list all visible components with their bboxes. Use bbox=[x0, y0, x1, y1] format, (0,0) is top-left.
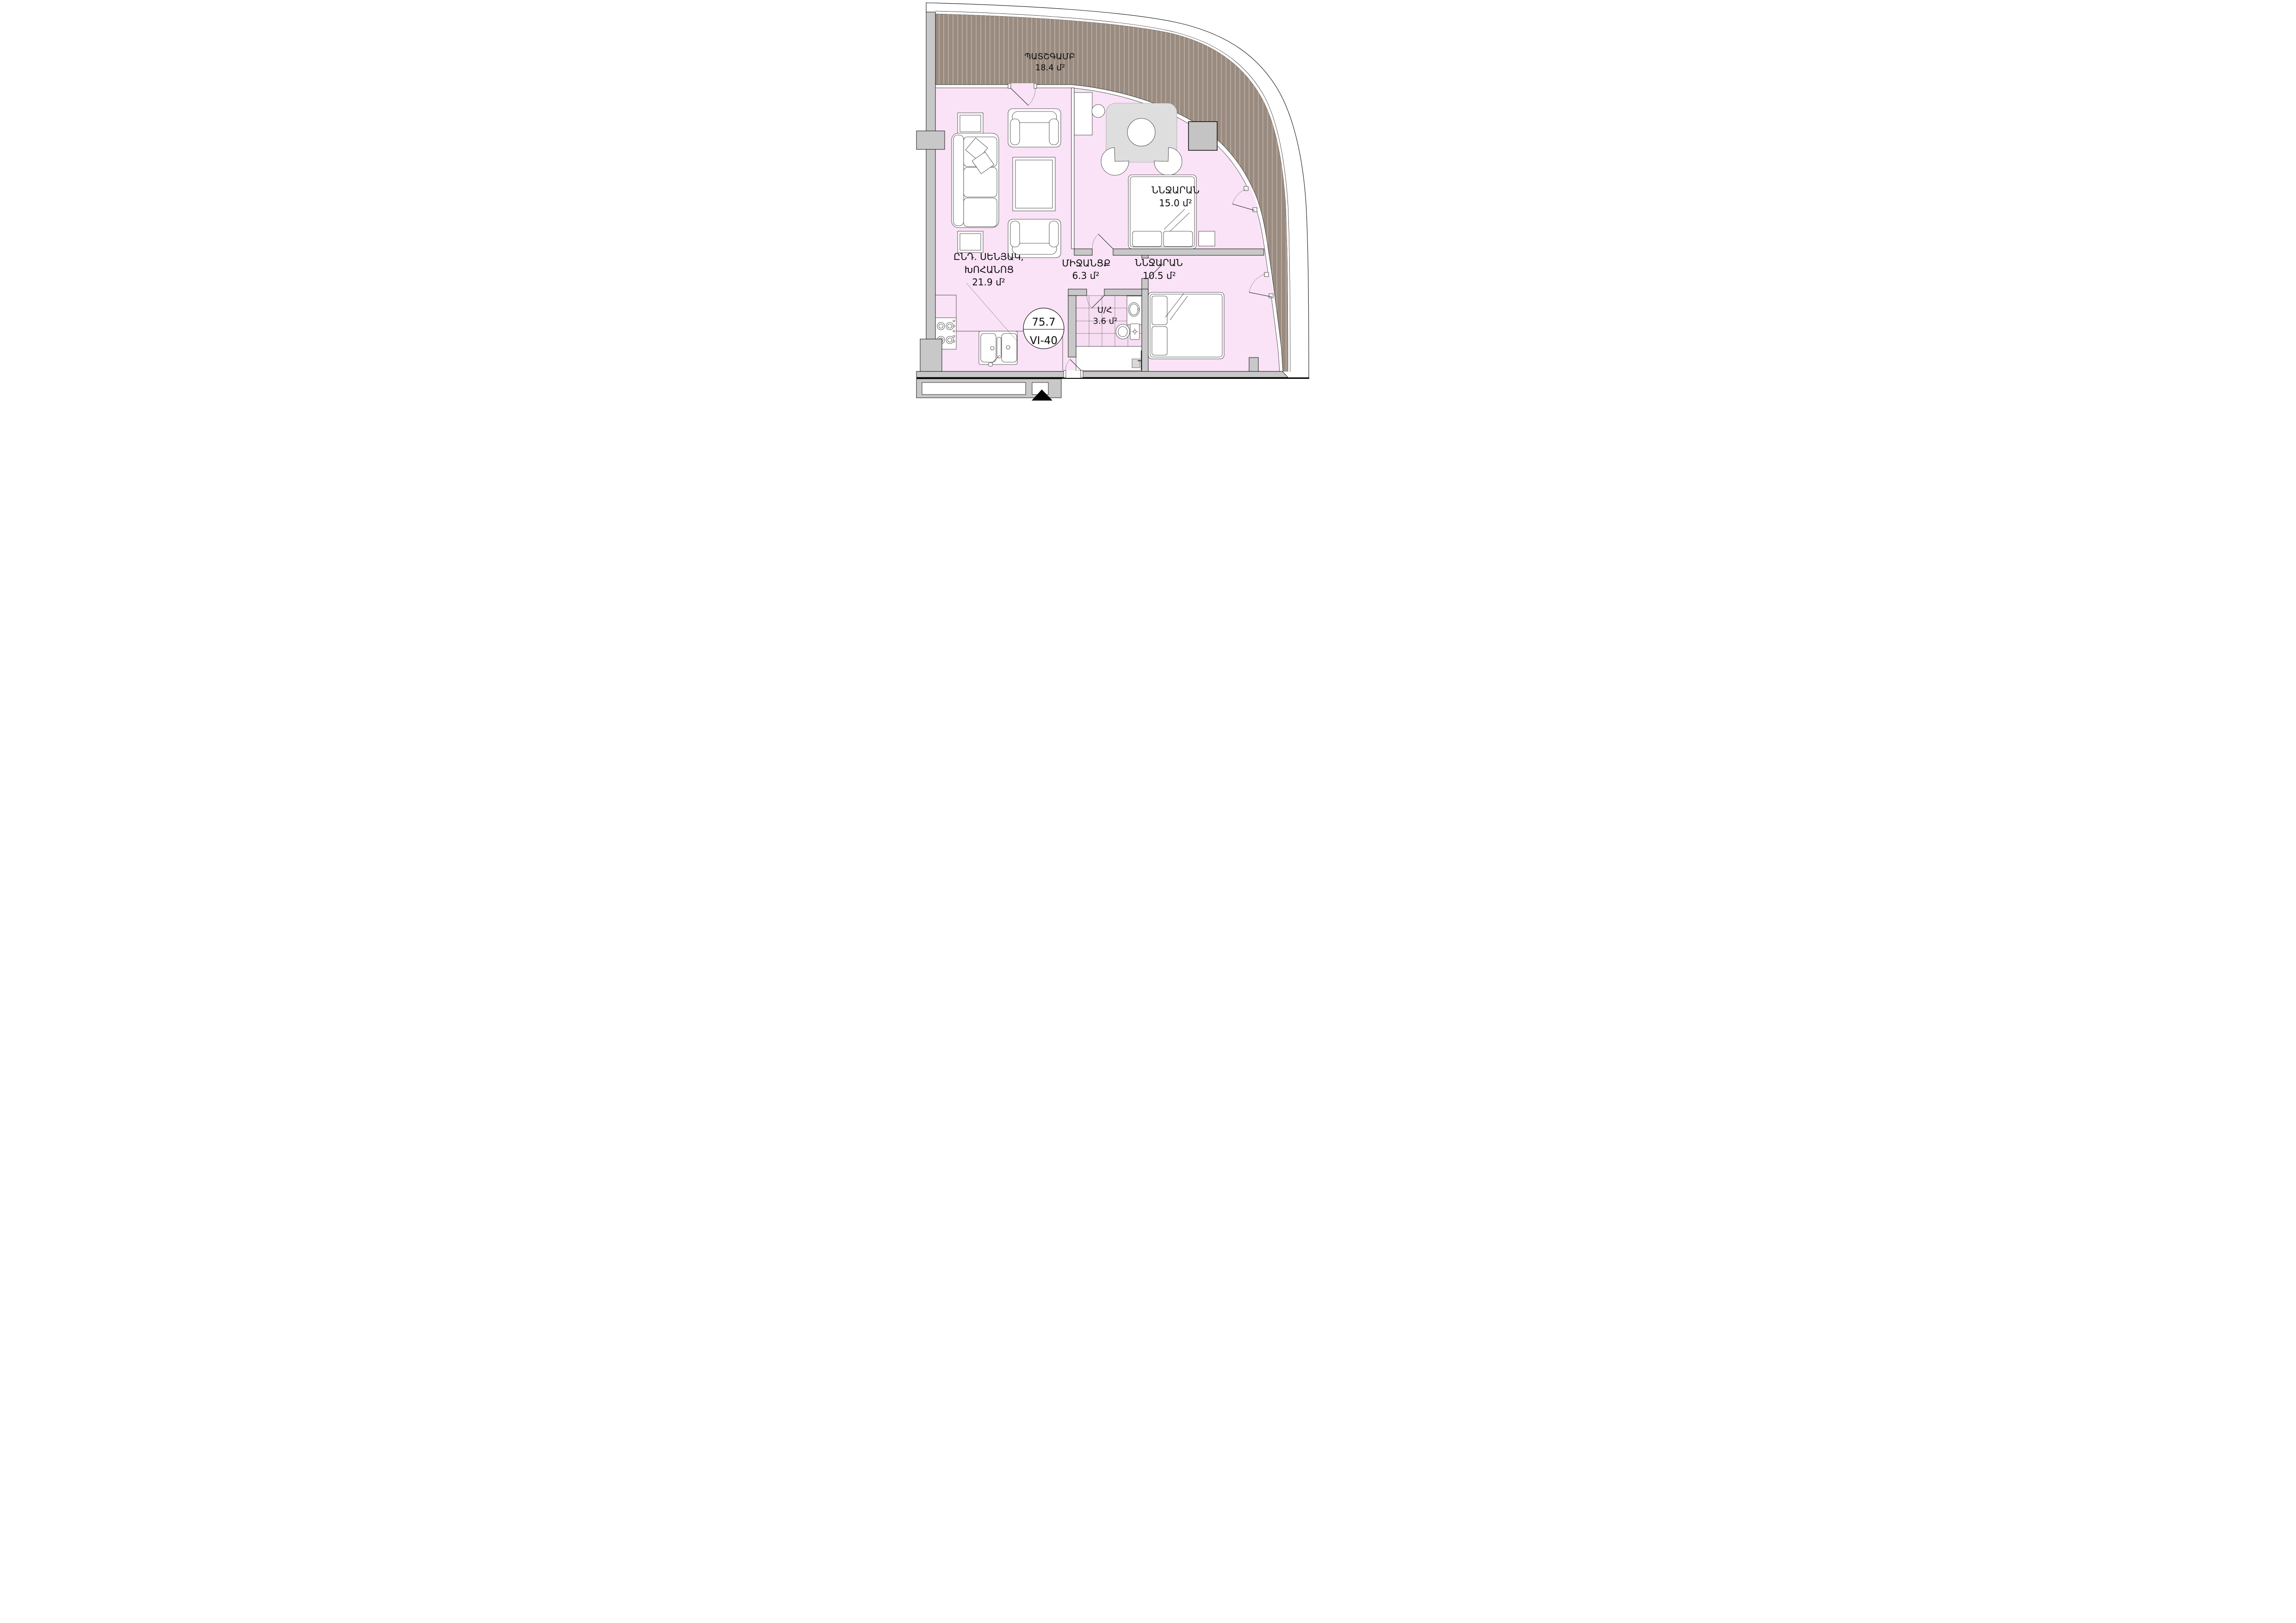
wardrobe bbox=[1074, 93, 1092, 135]
bottom-wall bbox=[916, 371, 1288, 377]
pillow bbox=[1152, 296, 1167, 325]
bathroom-top-wall bbox=[1068, 289, 1087, 296]
corridor-name: ՄԻՋԱՆՑՔ bbox=[1062, 258, 1111, 269]
nightstand bbox=[1199, 231, 1215, 246]
window bbox=[922, 383, 1026, 395]
bathroom-sink bbox=[1127, 296, 1142, 325]
pillow bbox=[1133, 231, 1162, 247]
living-area: 21.9 մ² bbox=[972, 277, 1005, 288]
dining-table bbox=[1127, 118, 1155, 146]
bedroom-divider-wall bbox=[1113, 249, 1264, 255]
bedroom1-partition-wall bbox=[1071, 88, 1074, 249]
left-wall bbox=[926, 12, 935, 371]
bathroom-name: Ս/Հ bbox=[1097, 305, 1112, 315]
floor-plan-drawing: ՊԱՏՇԳԱՄԲ 18.4 մ² ԸՆԴ. ՍԵՆՅԱԿ, ԽՈՀԱՆՈՑ 21… bbox=[861, 0, 1435, 406]
armchair bbox=[1008, 109, 1061, 147]
living-name-line1: ԸՆԴ. ՍԵՆՅԱԿ, bbox=[953, 251, 1024, 262]
side-table bbox=[958, 231, 983, 253]
bathroom-right-wall bbox=[1142, 289, 1148, 371]
bedroom2-area: 10.5 մ² bbox=[1143, 270, 1176, 281]
bottom-wall-base bbox=[916, 377, 1309, 379]
bedroom2-wall-pier bbox=[1249, 358, 1258, 371]
badge-area-value: 75.7 bbox=[1032, 316, 1055, 328]
unit-info-badge: 75.7 VI-40 bbox=[1023, 308, 1064, 349]
bedroom-divider-wall bbox=[1074, 249, 1092, 255]
balcony-name: ՊԱՏՇԳԱՄԲ bbox=[1024, 52, 1075, 62]
bedroom2-name: ՆՆՋԱՐԱՆ bbox=[1135, 257, 1183, 268]
bedroom2-furniture bbox=[1148, 292, 1224, 359]
utility-niche bbox=[1076, 346, 1145, 370]
floor-lamp bbox=[1092, 105, 1105, 117]
bedroom1-name: ՆՆՋԱՐԱՆ bbox=[1151, 185, 1200, 196]
living-bathroom-wall bbox=[1068, 296, 1076, 357]
toilet bbox=[1116, 324, 1139, 339]
badge-unit-number: VI-40 bbox=[1030, 335, 1058, 347]
bathroom-area: 3.6 մ² bbox=[1093, 316, 1118, 326]
pillow bbox=[1163, 231, 1193, 247]
floor-plan-page: ՊԱՏՇԳԱՄԲ 18.4 մ² ԸՆԴ. ՍԵՆՅԱԿ, ԽՈՀԱՆՈՑ 21… bbox=[861, 0, 1435, 406]
pillow bbox=[1152, 327, 1167, 355]
living-name-line2: ԽՈՀԱՆՈՑ bbox=[965, 264, 1014, 275]
kitchen-wall-pier bbox=[920, 339, 942, 371]
double-bed bbox=[1148, 292, 1224, 359]
balcony-area: 18.4 մ² bbox=[1035, 63, 1065, 73]
sofa bbox=[952, 133, 999, 228]
left-wall-column bbox=[916, 131, 945, 149]
washing-machine bbox=[1132, 359, 1140, 368]
kitchen-sink bbox=[979, 331, 1017, 366]
corridor-area: 6.3 մ² bbox=[1072, 270, 1100, 281]
bedroom1-area: 15.0 մ² bbox=[1159, 197, 1192, 209]
side-table bbox=[958, 113, 983, 134]
cabinet bbox=[1188, 122, 1217, 150]
coffee-table bbox=[1013, 157, 1055, 211]
